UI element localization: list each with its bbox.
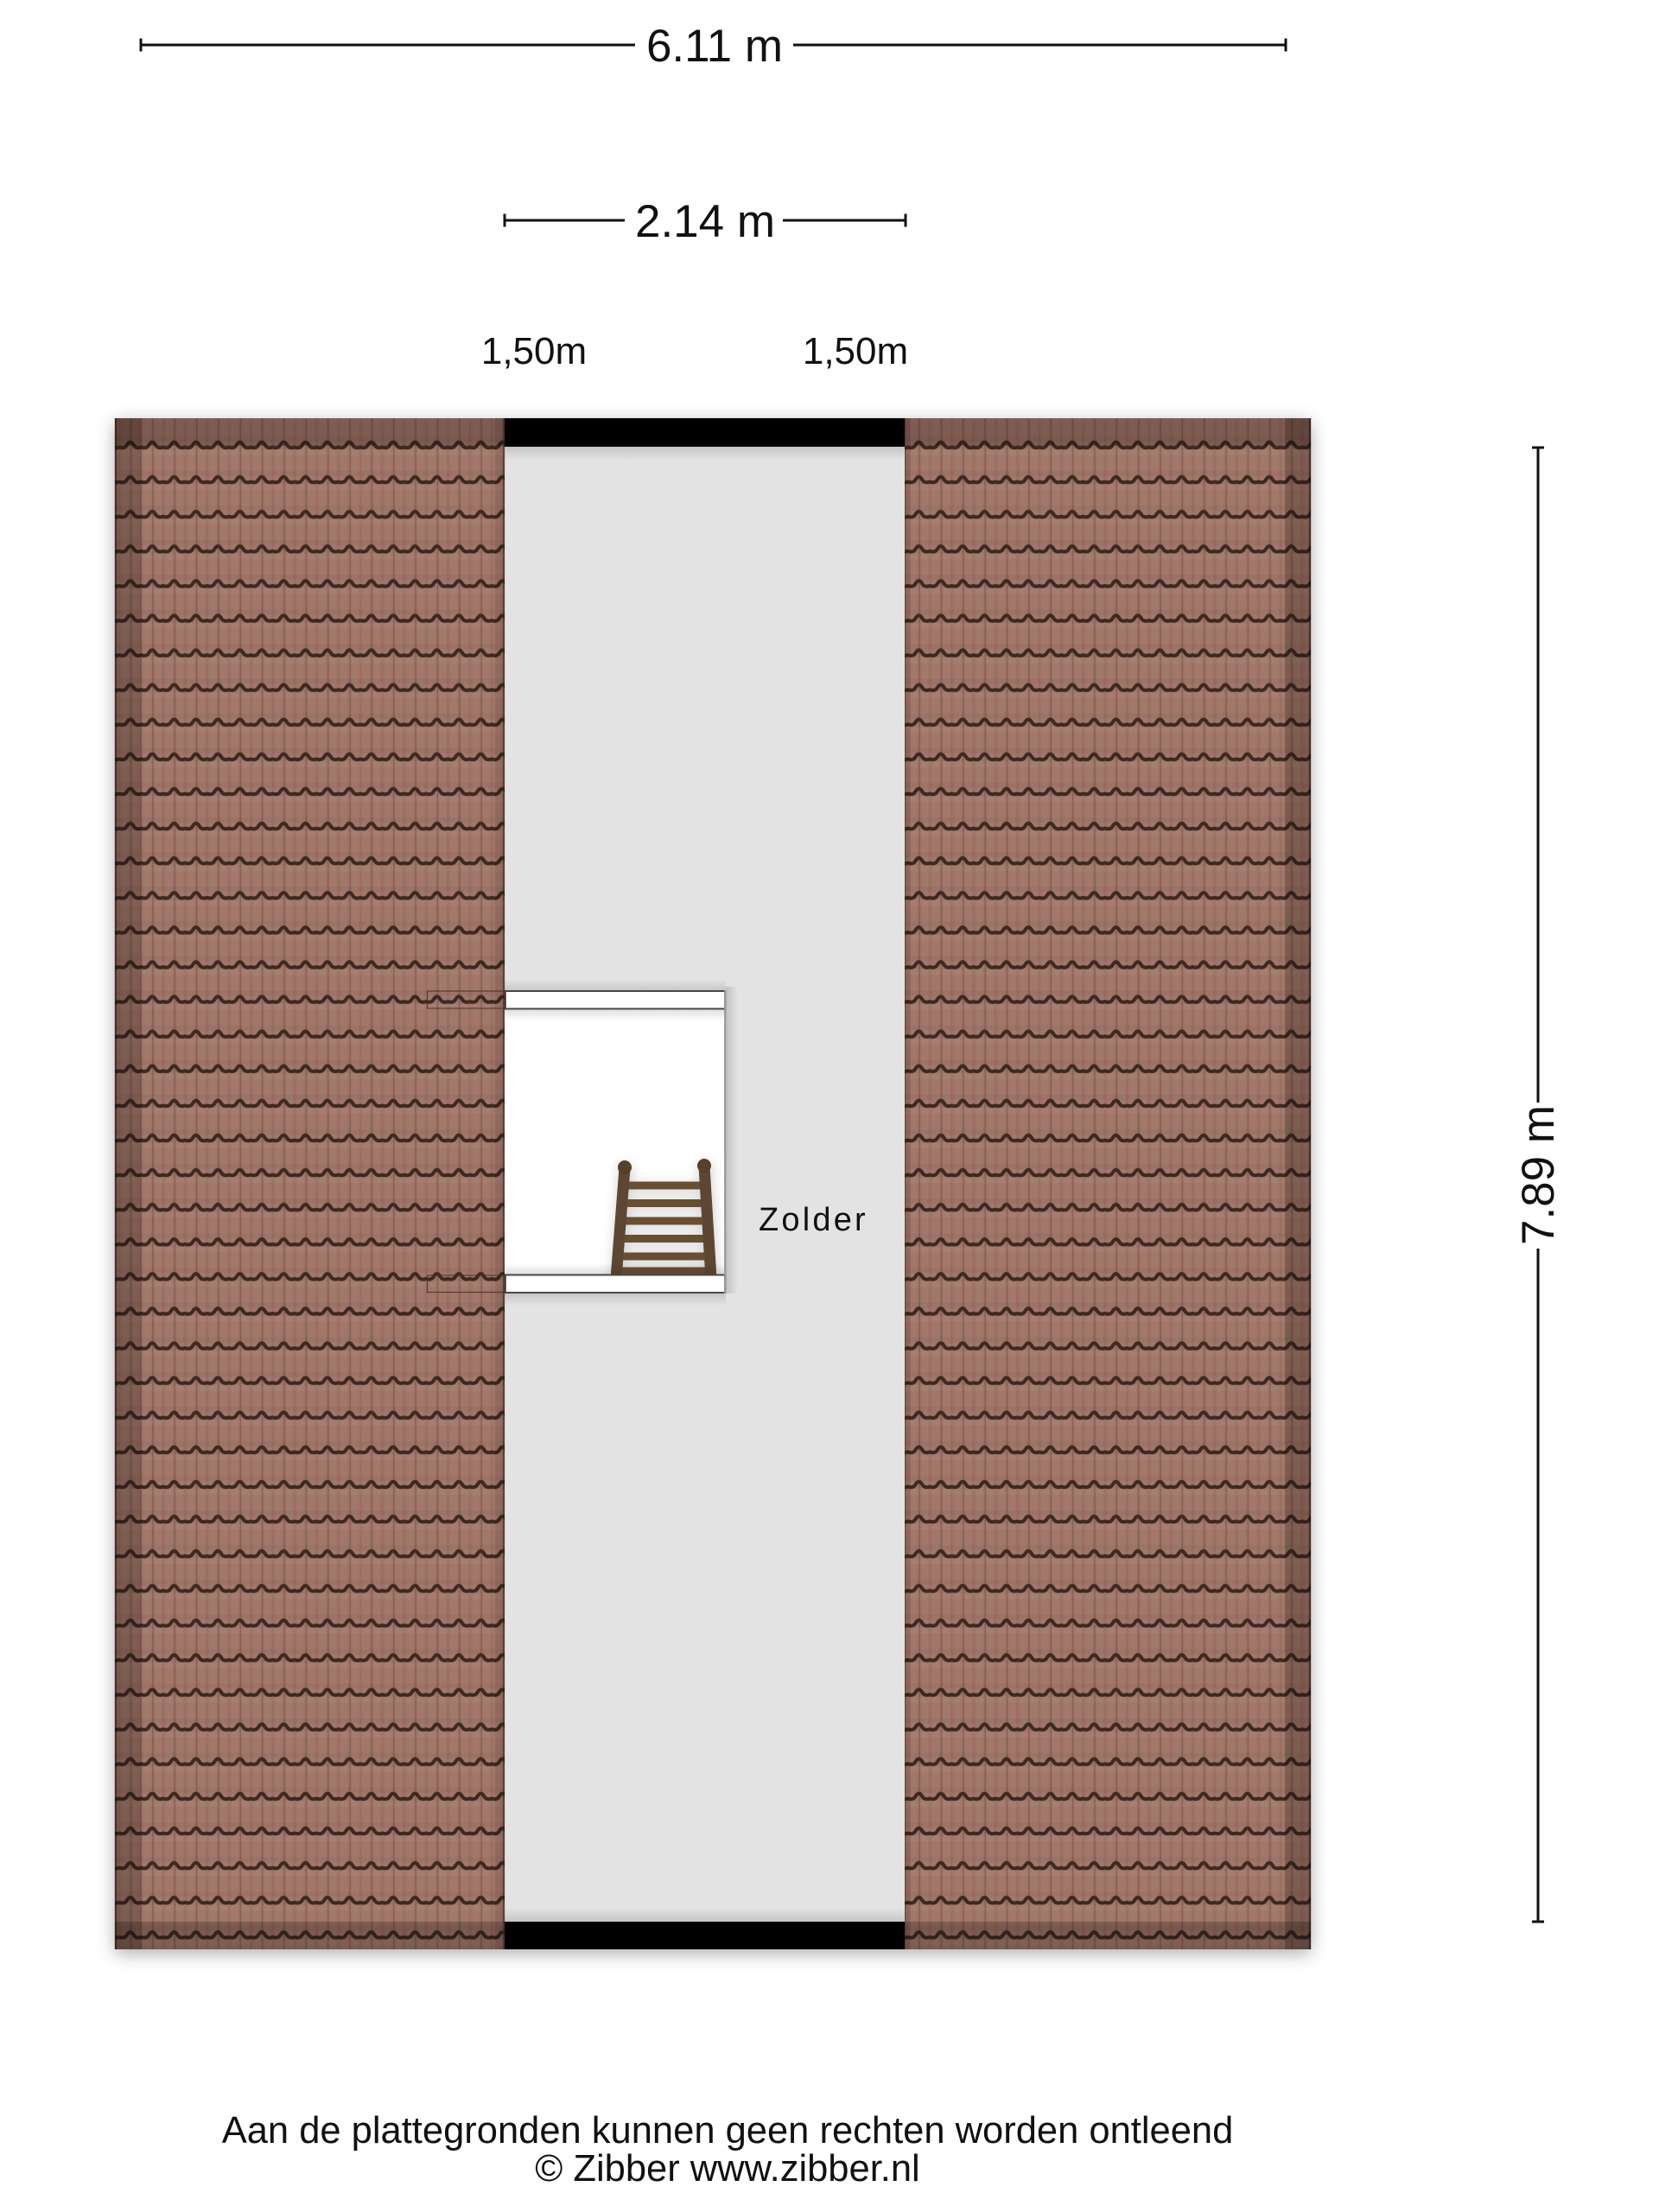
svg-text:1,50m: 1,50m	[481, 330, 587, 372]
svg-text:2.14 m: 2.14 m	[635, 196, 775, 247]
svg-text:1,50m: 1,50m	[803, 330, 908, 372]
svg-text:Aan de plattegronden kunnen ge: Aan de plattegronden kunnen geen rechten…	[222, 2110, 1234, 2152]
svg-text:7.89 m: 7.89 m	[1513, 1105, 1564, 1245]
svg-text:© Zibber www.zibber.nl: © Zibber www.zibber.nl	[535, 2148, 919, 2190]
svg-text:Zolder: Zolder	[759, 1202, 868, 1238]
svg-text:6.11 m: 6.11 m	[646, 21, 783, 72]
